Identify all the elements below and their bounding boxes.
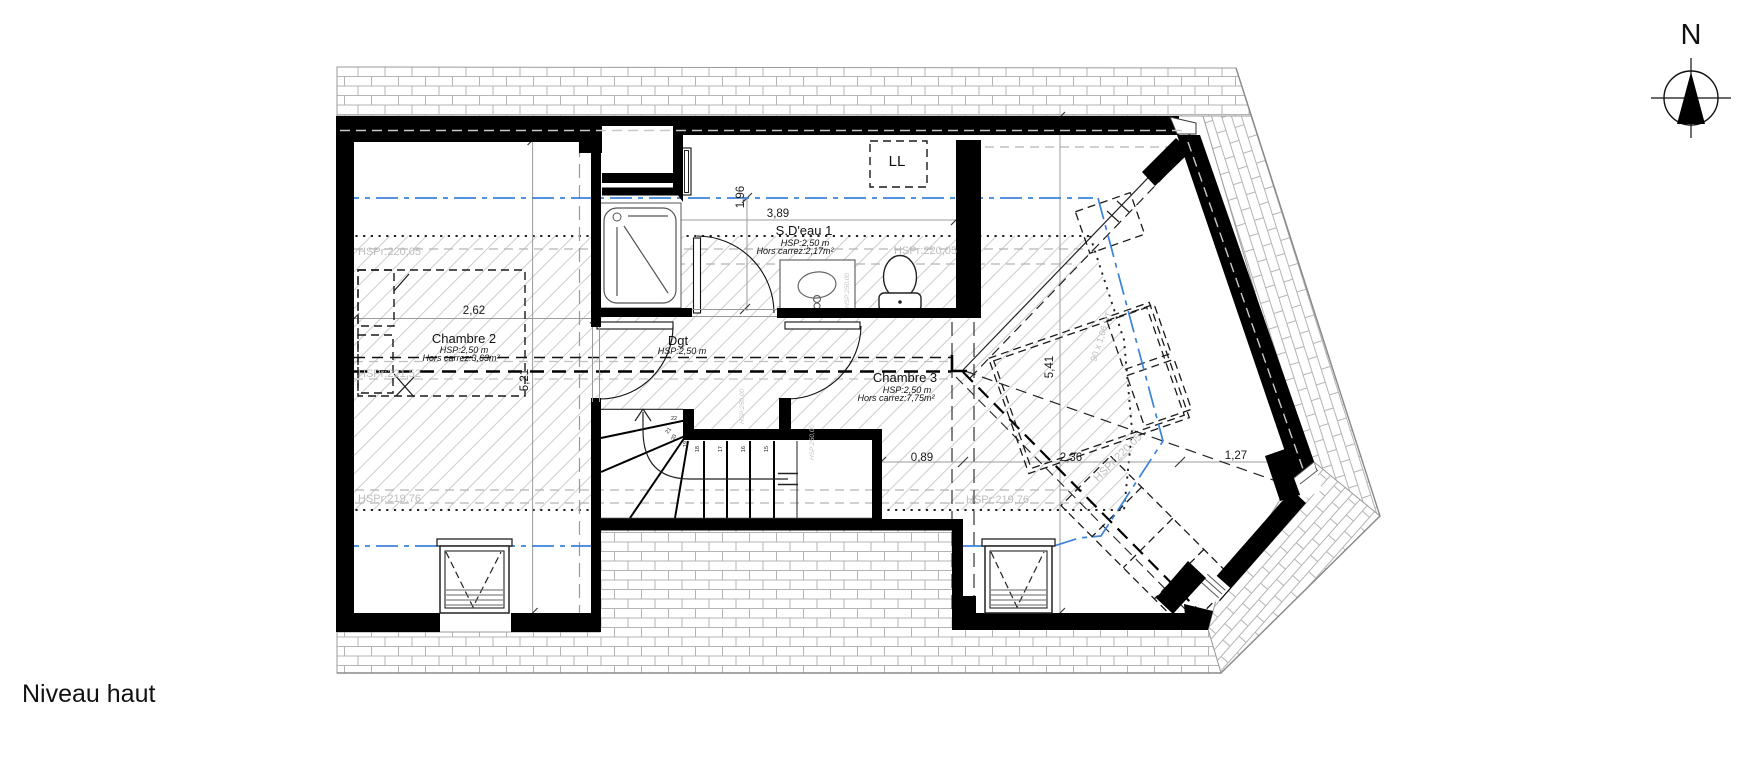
svg-text:2,36: 2,36 (1060, 452, 1082, 464)
svg-text:HSP:250,00: HSP:250,00 (809, 425, 816, 460)
svg-text:1,96: 1,96 (735, 186, 747, 208)
svg-text:HSPr:220,05: HSPr:220,05 (894, 245, 957, 257)
svg-text:HSPr:219,76: HSPr:219,76 (966, 494, 1029, 506)
svg-text:15: 15 (764, 446, 770, 452)
svg-text:HSPr:221,52: HSPr:221,52 (358, 368, 421, 380)
svg-text:HSPr:219,76: HSPr:219,76 (358, 493, 421, 505)
svg-text:Hors carrez:3,63m²: Hors carrez:3,63m² (422, 353, 500, 363)
svg-text:5,21: 5,21 (519, 369, 531, 391)
svg-text:HSPr:220,05: HSPr:220,05 (358, 246, 421, 258)
svg-text:5,41: 5,41 (1044, 356, 1056, 378)
svg-text:1,27: 1,27 (1225, 450, 1247, 462)
svg-text:22: 22 (671, 416, 677, 422)
svg-text:LL: LL (889, 153, 906, 170)
svg-text:S.D'eau 1: S.D'eau 1 (776, 223, 833, 238)
svg-text:Chambre 2: Chambre 2 (432, 331, 496, 346)
svg-text:Hors carrez:7,75m²: Hors carrez:7,75m² (857, 393, 935, 403)
svg-text:HSP:250,00: HSP:250,00 (739, 389, 746, 424)
svg-text:3,89: 3,89 (767, 208, 789, 220)
svg-text:Hors carrez:2,17m²: Hors carrez:2,17m² (756, 246, 834, 256)
svg-text:Niveau haut: Niveau haut (22, 680, 155, 708)
svg-text:16: 16 (741, 446, 747, 452)
svg-text:0,89: 0,89 (911, 452, 933, 464)
svg-text:N: N (1681, 19, 1702, 51)
svg-text:19: 19 (683, 441, 689, 447)
svg-text:HSP:250,00: HSP:250,00 (844, 273, 851, 308)
svg-text:2,62: 2,62 (463, 305, 485, 317)
svg-text:Chambre 3: Chambre 3 (873, 370, 937, 385)
svg-text:18: 18 (695, 446, 701, 452)
svg-text:HSP:2,50 m: HSP:2,50 m (658, 346, 707, 356)
svg-text:17: 17 (718, 446, 724, 452)
